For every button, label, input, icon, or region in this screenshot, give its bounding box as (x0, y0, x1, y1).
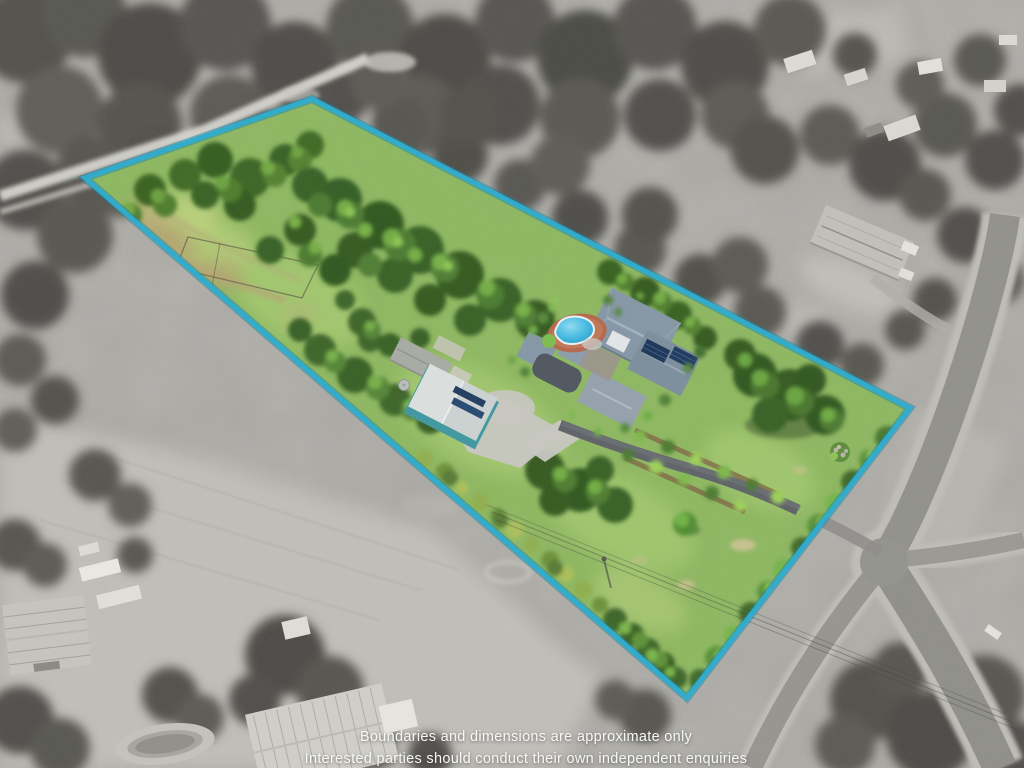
disclaimer-line-1: Boundaries and dimensions are approximat… (305, 726, 748, 748)
aerial-photo-canvas (0, 0, 1024, 768)
disclaimer: Boundaries and dimensions are approximat… (305, 726, 748, 768)
aerial-property-photo: Boundaries and dimensions are approximat… (0, 0, 1024, 768)
disclaimer-line-2: Interested parties should conduct their … (305, 748, 748, 768)
photo-grain-overlay (0, 0, 1024, 768)
